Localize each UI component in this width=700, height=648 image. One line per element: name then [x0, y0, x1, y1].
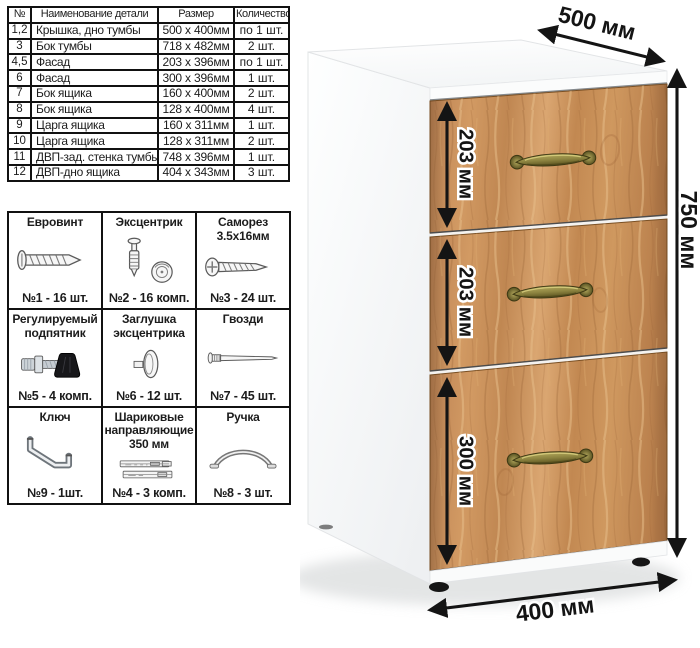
part-number: 4,5 — [8, 54, 31, 70]
part-size: 128 x 311мм — [158, 133, 234, 149]
part-size: 160 x 311мм — [158, 118, 234, 134]
part-name: Бок тумбы — [31, 39, 158, 55]
hardware-cell-self-tapping-screw: Саморез 3.5х16мм №3 - 24 шт. — [197, 213, 289, 308]
cam-lock-icon — [108, 235, 190, 285]
cabinet-rear-foot — [319, 525, 333, 530]
part-size: 300 x 396мм — [158, 70, 234, 86]
cabinet-side-panel — [308, 52, 430, 584]
table-row: 6Фасад300 x 396мм1 шт. — [8, 70, 289, 86]
part-number: 9 — [8, 118, 31, 134]
hardware-name: Ключ — [40, 411, 71, 425]
arch-handle-icon — [202, 435, 284, 475]
part-qty: 4 шт. — [234, 102, 289, 118]
part-name: Царга ящика — [31, 133, 158, 149]
dimension-label-drawer-2: 203 мм — [455, 267, 478, 337]
part-name: Фасад — [31, 70, 158, 86]
part-qty: 2 шт. — [234, 39, 289, 55]
table-row: 3Бок тумбы718 x 482мм2 шт. — [8, 39, 289, 55]
part-size: 404 x 343мм — [158, 165, 234, 181]
part-qty: 1 шт. — [234, 118, 289, 134]
dimension-label-drawer-3: 300 мм — [455, 436, 478, 506]
ball-bearing-slides-icon — [108, 452, 190, 486]
table-row: 1,2Крышка, дно тумбы500 x 400ммпо 1 шт. — [8, 23, 289, 39]
adjustable-foot-icon — [14, 342, 96, 386]
part-name: Фасад — [31, 54, 158, 70]
cabinet-svg: 500 мм 750 мм 400 мм 203 мм 203 мм 300 м… — [300, 0, 700, 648]
hardware-cell-hex-key: Ключ №9 - 1шт. — [9, 408, 101, 503]
hardware-cell-adjustable-foot: Регулируемый подпятник №5 - 4 комп. — [9, 310, 101, 405]
table-row: 12ДВП-дно ящика404 x 343мм3 шт. — [8, 165, 289, 181]
cam-cover-icon — [108, 342, 190, 386]
table-header-row: № Наименование детали Размер Количество — [8, 7, 289, 23]
part-number: 12 — [8, 165, 31, 181]
part-number: 8 — [8, 102, 31, 118]
col-header-quantity: Количество — [234, 7, 289, 23]
parts-table: № Наименование детали Размер Количество … — [7, 6, 290, 182]
part-size: 718 x 482мм — [158, 39, 234, 55]
part-name: Бок ящика — [31, 86, 158, 102]
hardware-name: Гвозди — [223, 313, 264, 327]
table-row: 4,5Фасад203 x 396ммпо 1 шт. — [8, 54, 289, 70]
table-row: 7Бок ящика160 x 400мм2 шт. — [8, 86, 289, 102]
part-number: 3 — [8, 39, 31, 55]
hardware-count: №4 - 3 комп. — [112, 486, 186, 500]
table-row: 8Бок ящика128 x 400мм4 шт. — [8, 102, 289, 118]
hardware-count: №5 - 4 комп. — [18, 389, 92, 403]
hardware-count: №3 - 24 шт. — [210, 291, 276, 305]
part-qty: 1 шт. — [234, 70, 289, 86]
dimension-label-drawer-1: 203 мм — [455, 129, 478, 199]
table-row: 10Царга ящика128 x 311мм2 шт. — [8, 133, 289, 149]
part-number: 7 — [8, 86, 31, 102]
part-name: Крышка, дно тумбы — [31, 23, 158, 39]
hardware-count: №6 - 12 шт. — [116, 389, 182, 403]
hardware-cell-euro-screw: Евровинт №1 - 16 шт. — [9, 213, 101, 308]
part-number: 10 — [8, 133, 31, 149]
hardware-cell-cam-cover: Заглушка эксцентрика №6 - 12 шт. — [103, 310, 195, 405]
hardware-cell-ball-bearing-slides: Шариковые направляющие 350 мм №4 - 3 ком… — [103, 408, 195, 503]
part-qty: по 1 шт. — [234, 23, 289, 39]
hardware-count: №8 - 3 шт. — [213, 486, 272, 500]
hardware-count: №2 - 16 комп. — [109, 291, 190, 305]
hardware-name: Саморез 3.5х16мм — [198, 216, 288, 243]
hardware-name: Эксцентрик — [116, 216, 183, 230]
hardware-name: Евровинт — [27, 216, 83, 230]
hardware-cell-nail: Гвозди №7 - 45 шт. — [197, 310, 289, 405]
hardware-cell-arch-handle: Ручка №8 - 3 шт. — [197, 408, 289, 503]
hardware-grid: Евровинт №1 - 16 шт. Эксцентрик — [7, 211, 291, 505]
hardware-count: №7 - 45 шт. — [210, 389, 276, 403]
assembly-sheet: № Наименование детали Размер Количество … — [0, 0, 700, 648]
part-size: 203 x 396мм — [158, 54, 234, 70]
col-header-number: № — [8, 7, 31, 23]
hardware-name: Ручка — [226, 411, 259, 425]
cabinet-foot-right — [632, 558, 650, 567]
part-size: 748 x 396мм — [158, 149, 234, 165]
cabinet-illustration: 500 мм 750 мм 400 мм 203 мм 203 мм 300 м… — [300, 0, 700, 648]
part-number: 11 — [8, 149, 31, 165]
col-header-name: Наименование детали — [31, 7, 158, 23]
part-name: ДВП-зад. стенка тумбы — [31, 149, 158, 165]
hardware-count: №9 - 1шт. — [27, 486, 83, 500]
hardware-count: №1 - 16 шт. — [22, 291, 88, 305]
part-name: ДВП-дно ящика — [31, 165, 158, 181]
cabinet-foot-left — [429, 582, 449, 592]
table-row: 11ДВП-зад. стенка тумбы748 x 396мм1 шт. — [8, 149, 289, 165]
self-tapping-screw-icon — [202, 248, 284, 286]
part-qty: 2 шт. — [234, 86, 289, 102]
part-size: 160 x 400мм — [158, 86, 234, 102]
part-qty: 2 шт. — [234, 133, 289, 149]
part-qty: 3 шт. — [234, 165, 289, 181]
euro-screw-icon — [14, 241, 96, 279]
part-name: Бок ящика — [31, 102, 158, 118]
part-size: 128 x 400мм — [158, 102, 234, 118]
part-size: 500 x 400мм — [158, 23, 234, 39]
table-row: 9Царга ящика160 x 311мм1 шт. — [8, 118, 289, 134]
part-name: Царга ящика — [31, 118, 158, 134]
hardware-cell-cam-lock: Эксцентрик №2 - 16 комп. — [103, 213, 195, 308]
hardware-name: Шариковые направляющие 350 мм — [104, 411, 194, 452]
hardware-name: Регулируемый подпятник — [10, 313, 100, 340]
col-header-size: Размер — [158, 7, 234, 23]
part-qty: по 1 шт. — [234, 54, 289, 70]
hex-key-icon — [14, 432, 96, 478]
hardware-name: Заглушка эксцентрика — [104, 313, 194, 340]
dimension-label-height: 750 мм — [676, 191, 700, 270]
nail-icon — [202, 343, 284, 373]
part-number: 1,2 — [8, 23, 31, 39]
part-qty: 1 шт. — [234, 149, 289, 165]
part-number: 6 — [8, 70, 31, 86]
